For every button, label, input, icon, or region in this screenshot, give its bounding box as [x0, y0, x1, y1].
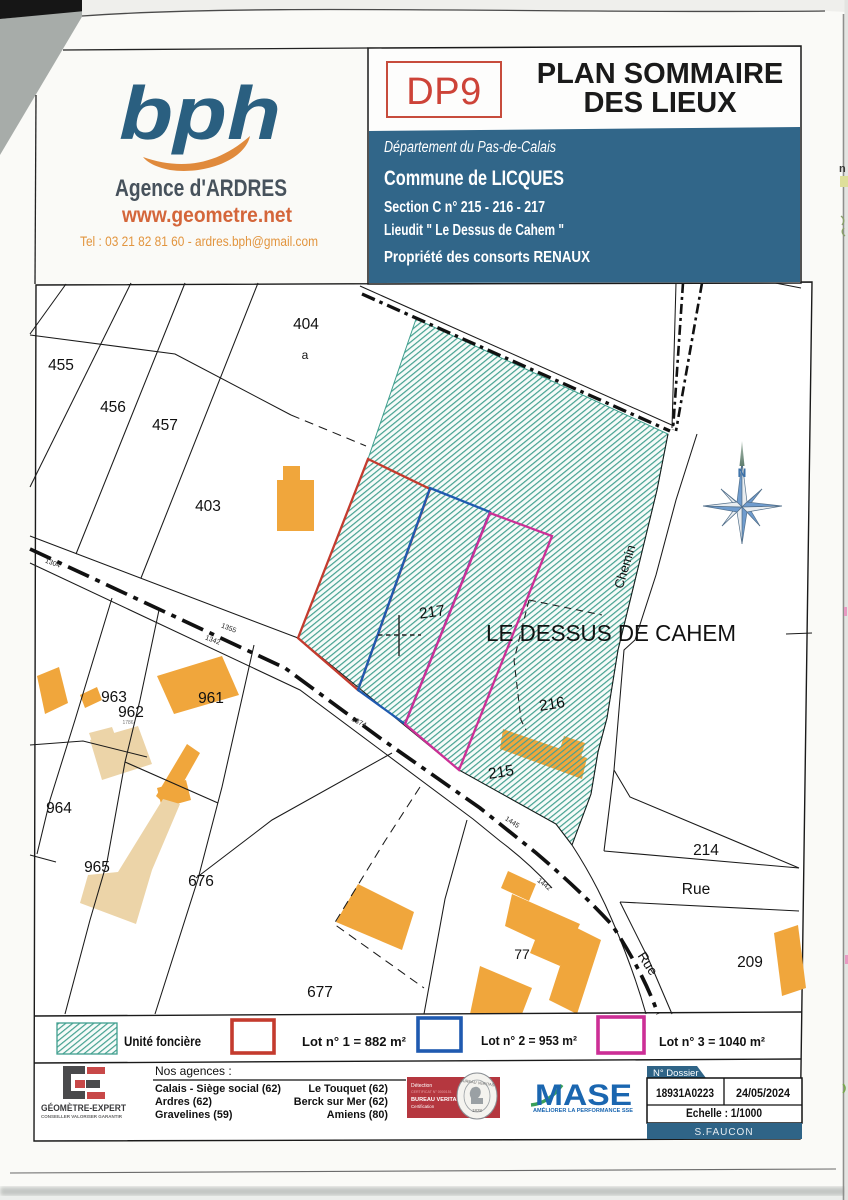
- svg-text:Commune de LICQUES: Commune de LICQUES: [384, 167, 564, 190]
- svg-text:1786: 1786: [122, 720, 133, 726]
- svg-text:Le Touquet (62): Le Touquet (62): [308, 1083, 388, 1095]
- svg-text:77: 77: [514, 946, 530, 962]
- svg-text:Lot n° 3 = 1040 m²: Lot n° 3 = 1040 m²: [659, 1034, 766, 1049]
- svg-text:403: 403: [195, 498, 221, 515]
- svg-text:CONSEILLER VALORISER GARANTIR: CONSEILLER VALORISER GARANTIR: [41, 1114, 123, 1119]
- svg-text:Amiens (80): Amiens (80): [327, 1109, 389, 1121]
- svg-text:Département du Pas-de-Calais: Département du Pas-de-Calais: [384, 139, 556, 156]
- svg-text:AMÉLIORER LA PERFORMANCE SSE: AMÉLIORER LA PERFORMANCE SSE: [533, 1106, 633, 1114]
- svg-text:677: 677: [307, 984, 333, 1001]
- svg-text:S.FAUCON: S.FAUCON: [694, 1127, 753, 1138]
- svg-text:a: a: [302, 348, 309, 362]
- svg-text:18931A0223: 18931A0223: [656, 1086, 714, 1100]
- svg-text:Ardres (62): Ardres (62): [155, 1096, 212, 1108]
- svg-text:Tel : 03 21 82 81 60 - ardres.: Tel : 03 21 82 81 60 - ardres.bph@gmail.…: [80, 234, 318, 249]
- svg-text:GÉOMÈTRE-EXPERT: GÉOMÈTRE-EXPERT: [41, 1103, 126, 1114]
- svg-text:Berck sur Mer (62): Berck sur Mer (62): [294, 1096, 389, 1108]
- svg-text:Nos agences :: Nos agences :: [155, 1064, 232, 1078]
- svg-text:965: 965: [84, 859, 110, 876]
- svg-text:Détection: Détection: [411, 1083, 432, 1089]
- svg-text:www.geometre.net: www.geometre.net: [121, 204, 292, 227]
- svg-text:Section C n° 215 - 216 - 217: Section C n° 215 - 216 - 217: [384, 199, 545, 216]
- svg-text:bph: bph: [119, 71, 281, 155]
- svg-text:CERTIFICAT N° 0000151: CERTIFICAT N° 0000151: [411, 1090, 452, 1094]
- svg-text:PLAN SOMMAIRE: PLAN SOMMAIRE: [537, 58, 784, 90]
- svg-text:209: 209: [737, 954, 763, 971]
- svg-text:457: 457: [152, 417, 178, 434]
- svg-text:Calais - Siège social (62): Calais - Siège social (62): [155, 1083, 281, 1095]
- svg-text:Lot n° 1 = 882 m²: Lot n° 1 = 882 m²: [302, 1034, 407, 1049]
- svg-text:Rue: Rue: [682, 881, 710, 898]
- svg-text:N: N: [738, 466, 747, 480]
- svg-text:Certification: Certification: [411, 1104, 435, 1109]
- svg-text:Echelle : 1/1000: Echelle : 1/1000: [686, 1106, 762, 1120]
- svg-text:456: 456: [100, 399, 126, 416]
- svg-text:455: 455: [48, 357, 74, 374]
- svg-text:404: 404: [293, 316, 319, 333]
- svg-text:962: 962: [118, 704, 144, 721]
- svg-text:Propriété des consorts RENAUX: Propriété des consorts RENAUX: [384, 249, 591, 266]
- svg-text:217: 217: [418, 602, 446, 622]
- svg-text:Lot n° 2 = 953 m²: Lot n° 2 = 953 m²: [481, 1033, 578, 1048]
- svg-text:n: n: [839, 163, 846, 175]
- svg-text:1828: 1828: [472, 1108, 482, 1113]
- svg-text:Agence d'ARDRES: Agence d'ARDRES: [115, 175, 287, 202]
- svg-text:Lieudit " Le Dessus de Cahem ": Lieudit " Le Dessus de Cahem ": [384, 222, 564, 239]
- svg-text:DES LIEUX: DES LIEUX: [583, 87, 737, 119]
- svg-text:961: 961: [198, 690, 224, 707]
- svg-text:Gravelines (59): Gravelines (59): [155, 1109, 233, 1121]
- svg-text:214: 214: [693, 842, 719, 859]
- svg-text:676: 676: [188, 873, 214, 890]
- svg-text:24/05/2024: 24/05/2024: [736, 1086, 790, 1100]
- svg-text:LE DESSUS DE CAHEM: LE DESSUS DE CAHEM: [486, 620, 736, 646]
- svg-text:BUREAU VERITAS: BUREAU VERITAS: [411, 1097, 461, 1103]
- svg-text:964: 964: [46, 800, 72, 817]
- svg-text:Unité foncière: Unité foncière: [124, 1034, 201, 1049]
- svg-text:DP9: DP9: [406, 71, 481, 113]
